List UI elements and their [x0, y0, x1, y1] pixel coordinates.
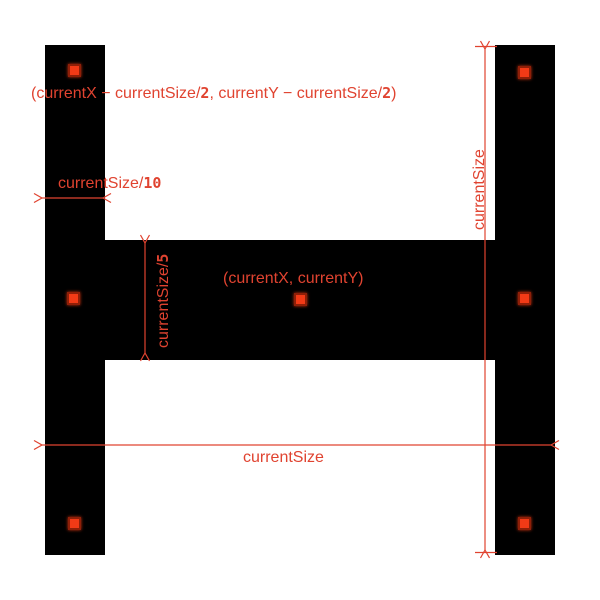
crossbar-height-denominator: 5 — [154, 254, 172, 263]
top-coord-denominator-2: 2 — [382, 84, 391, 102]
full-width-label: currentSize — [243, 449, 324, 466]
marker-center — [294, 293, 307, 306]
bar-width-text: currentSize/ — [58, 175, 143, 192]
marker-middle-left — [67, 292, 80, 305]
crossbar-height-label: currentSize/5 — [155, 254, 172, 348]
marker-middle-right — [518, 292, 531, 305]
bar-width-label: currentSize/10 — [58, 175, 161, 192]
h-shape-dimension-diagram: (currentX − currentSize/2, currentY − cu… — [0, 0, 600, 600]
marker-top-left — [68, 64, 81, 77]
full-height-label: currentSize — [471, 149, 488, 230]
marker-top-right — [518, 66, 531, 79]
top-coord-post: ) — [391, 85, 396, 102]
marker-bottom-left — [68, 517, 81, 530]
top-coord-mid: , currentY − currentSize/ — [209, 85, 382, 102]
marker-bottom-right — [518, 517, 531, 530]
top-left-coordinate-label: (currentX − currentSize/2, currentY − cu… — [31, 85, 396, 102]
crossbar-height-text: currentSize/ — [155, 263, 172, 348]
center-coordinate-label: (currentX, currentY) — [223, 270, 363, 287]
bar-width-denominator: 10 — [143, 174, 161, 192]
top-coord-pre: (currentX − currentSize/ — [31, 85, 200, 102]
